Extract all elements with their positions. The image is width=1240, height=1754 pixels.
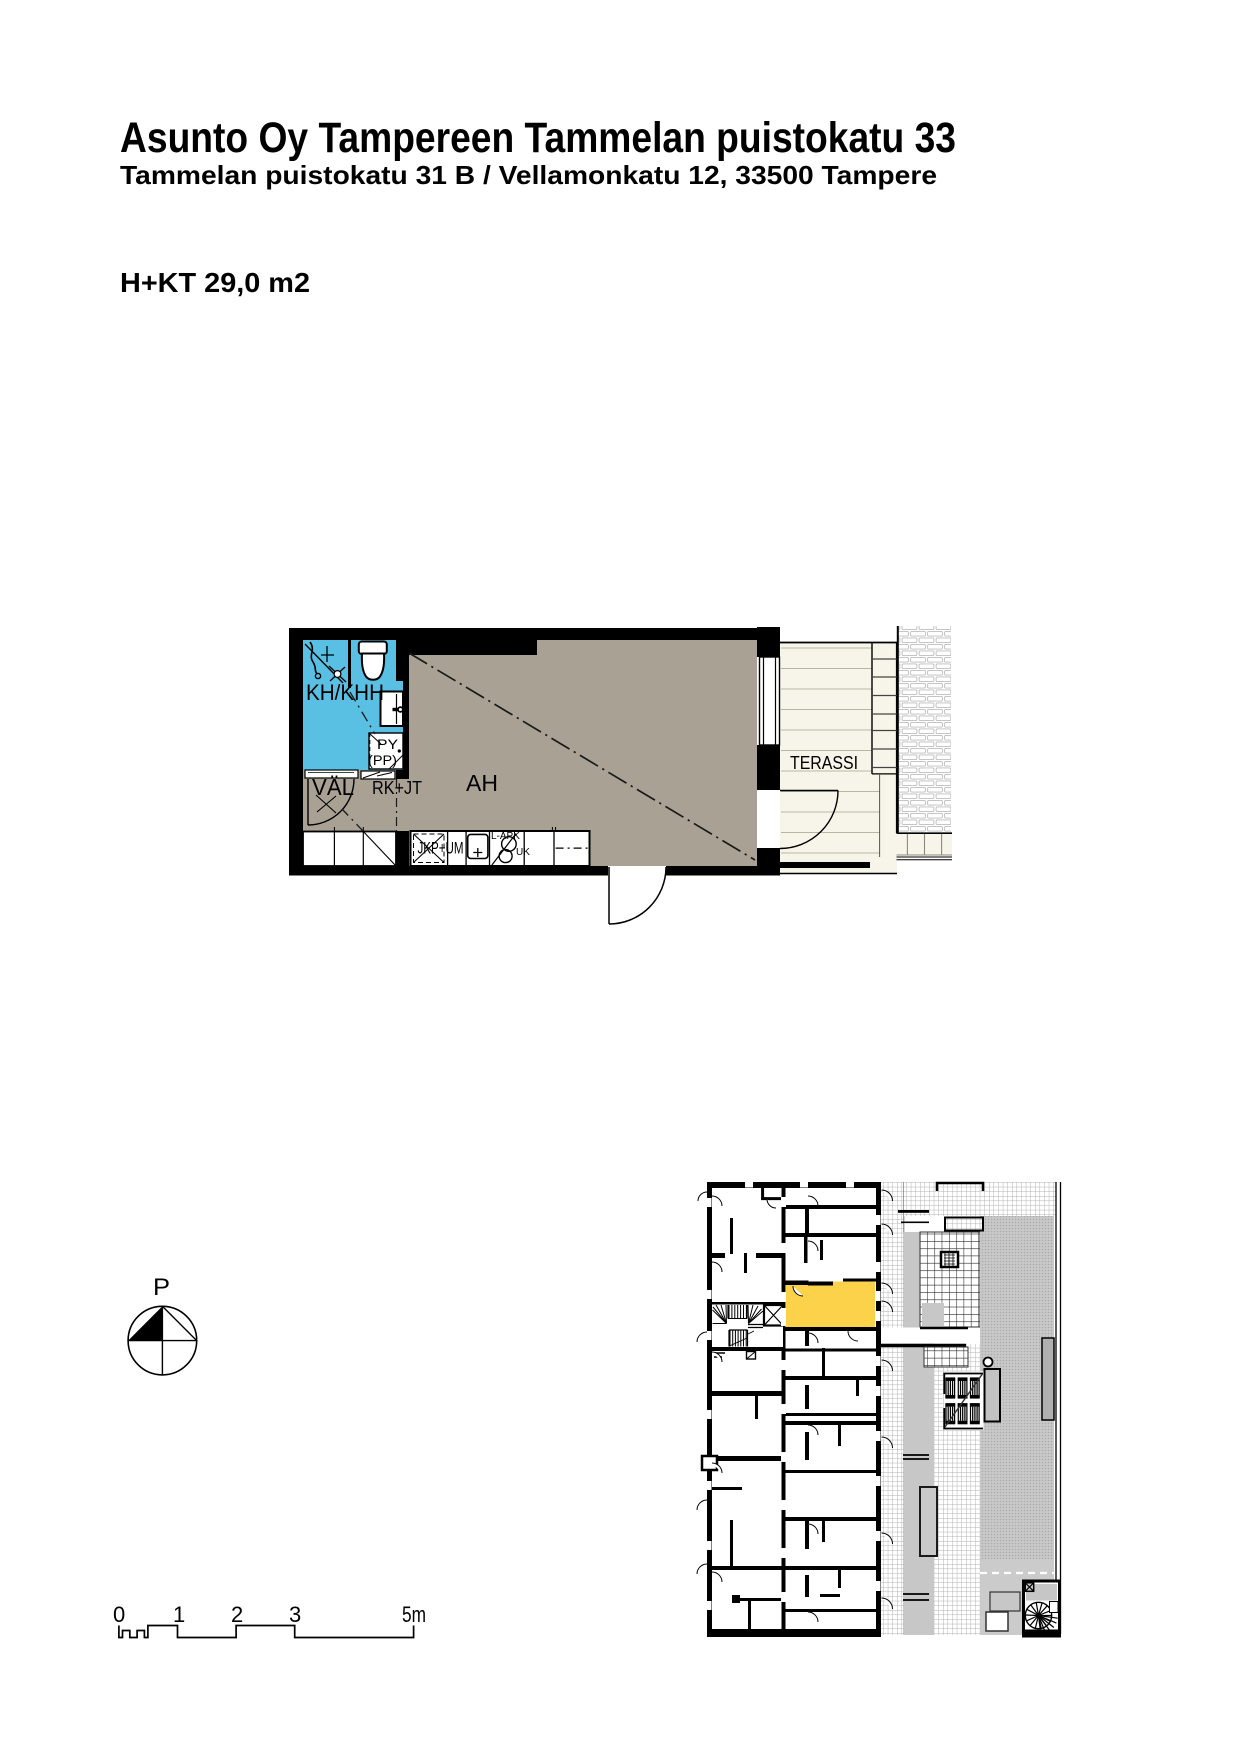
svg-text:Tammelan puistokatu 31 B / Vel: Tammelan puistokatu 31 B / Vellamonkatu …: [120, 160, 937, 190]
svg-text:Asunto Oy Tampereen Tammelan p: Asunto Oy Tampereen Tammelan puistokatu …: [120, 114, 956, 162]
svg-text:AH: AH: [466, 770, 498, 796]
svg-text:5m: 5m: [402, 1602, 426, 1627]
svg-text:L-APK: L-APK: [491, 831, 520, 842]
svg-text:1: 1: [173, 1602, 185, 1627]
svg-text:P: P: [153, 1274, 170, 1301]
svg-text:H+KT 29,0 m2: H+KT 29,0 m2: [120, 267, 310, 298]
svg-text:0: 0: [113, 1602, 125, 1627]
svg-text:PY: PY: [377, 736, 399, 752]
svg-text:3: 3: [289, 1602, 301, 1627]
svg-text:VÄL: VÄL: [312, 774, 354, 800]
svg-text:2: 2: [231, 1602, 243, 1627]
svg-text:TERASSI: TERASSI: [790, 753, 858, 773]
svg-text:KH/KHH: KH/KHH: [306, 680, 384, 705]
svg-text:JKP+UM: JKP+UM: [418, 839, 464, 858]
svg-text:UK: UK: [516, 847, 530, 858]
